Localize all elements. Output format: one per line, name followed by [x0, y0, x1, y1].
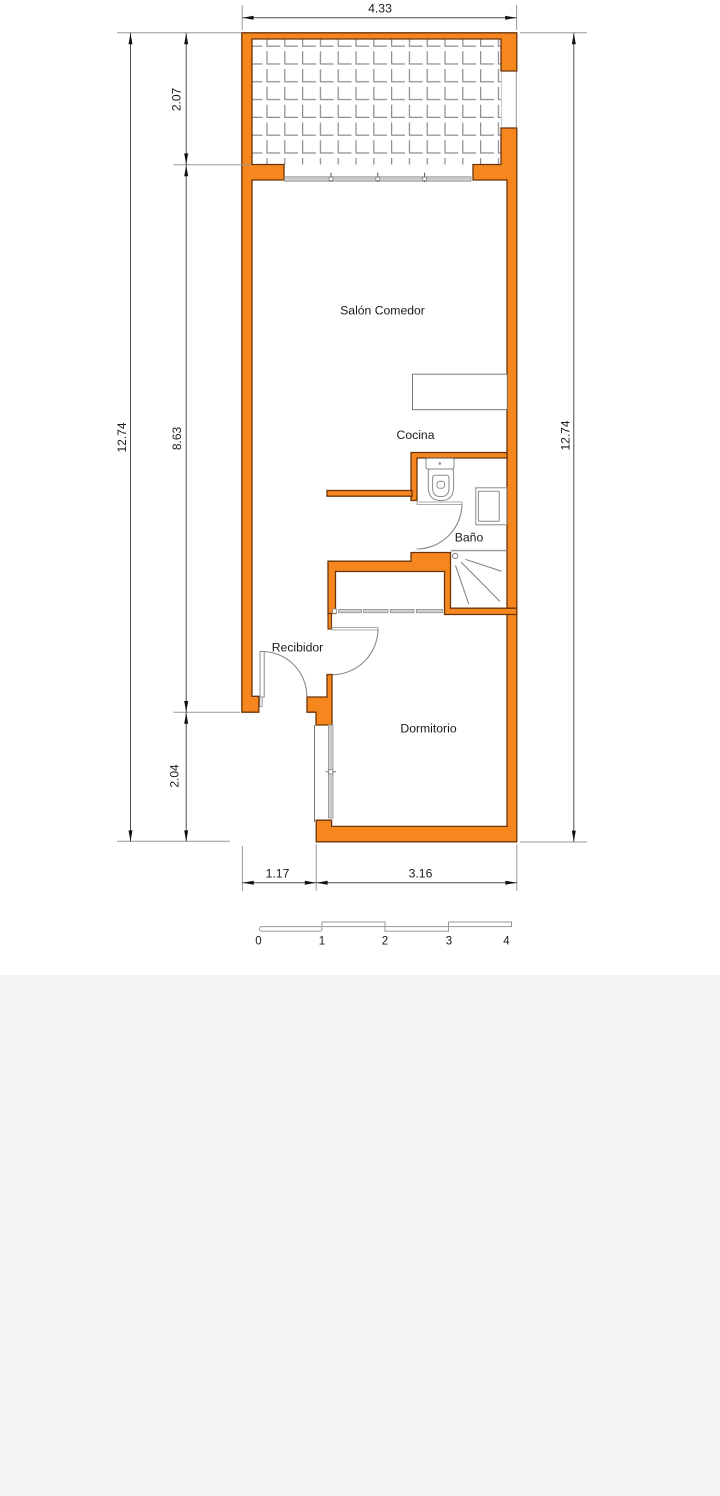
svg-text:12.74: 12.74	[559, 420, 573, 450]
svg-text:Dormitorio: Dormitorio	[400, 722, 456, 736]
svg-text:2.04: 2.04	[168, 764, 182, 788]
svg-text:4: 4	[503, 935, 510, 947]
svg-text:Salón Comedor: Salón Comedor	[340, 304, 425, 318]
svg-text:3.16: 3.16	[409, 867, 433, 881]
svg-text:0: 0	[255, 935, 261, 947]
svg-text:Cocina: Cocina	[397, 428, 435, 442]
svg-text:Recibidor: Recibidor	[272, 641, 323, 655]
svg-text:3: 3	[446, 935, 452, 947]
svg-text:1.17: 1.17	[266, 867, 290, 881]
svg-text:Baño: Baño	[455, 531, 484, 545]
svg-text:8.63: 8.63	[170, 426, 184, 450]
svg-text:12.74: 12.74	[115, 422, 129, 452]
svg-text:1: 1	[319, 935, 325, 947]
svg-text:4.33: 4.33	[368, 2, 392, 16]
svg-text:2: 2	[382, 935, 388, 947]
svg-text:2.07: 2.07	[170, 87, 184, 111]
